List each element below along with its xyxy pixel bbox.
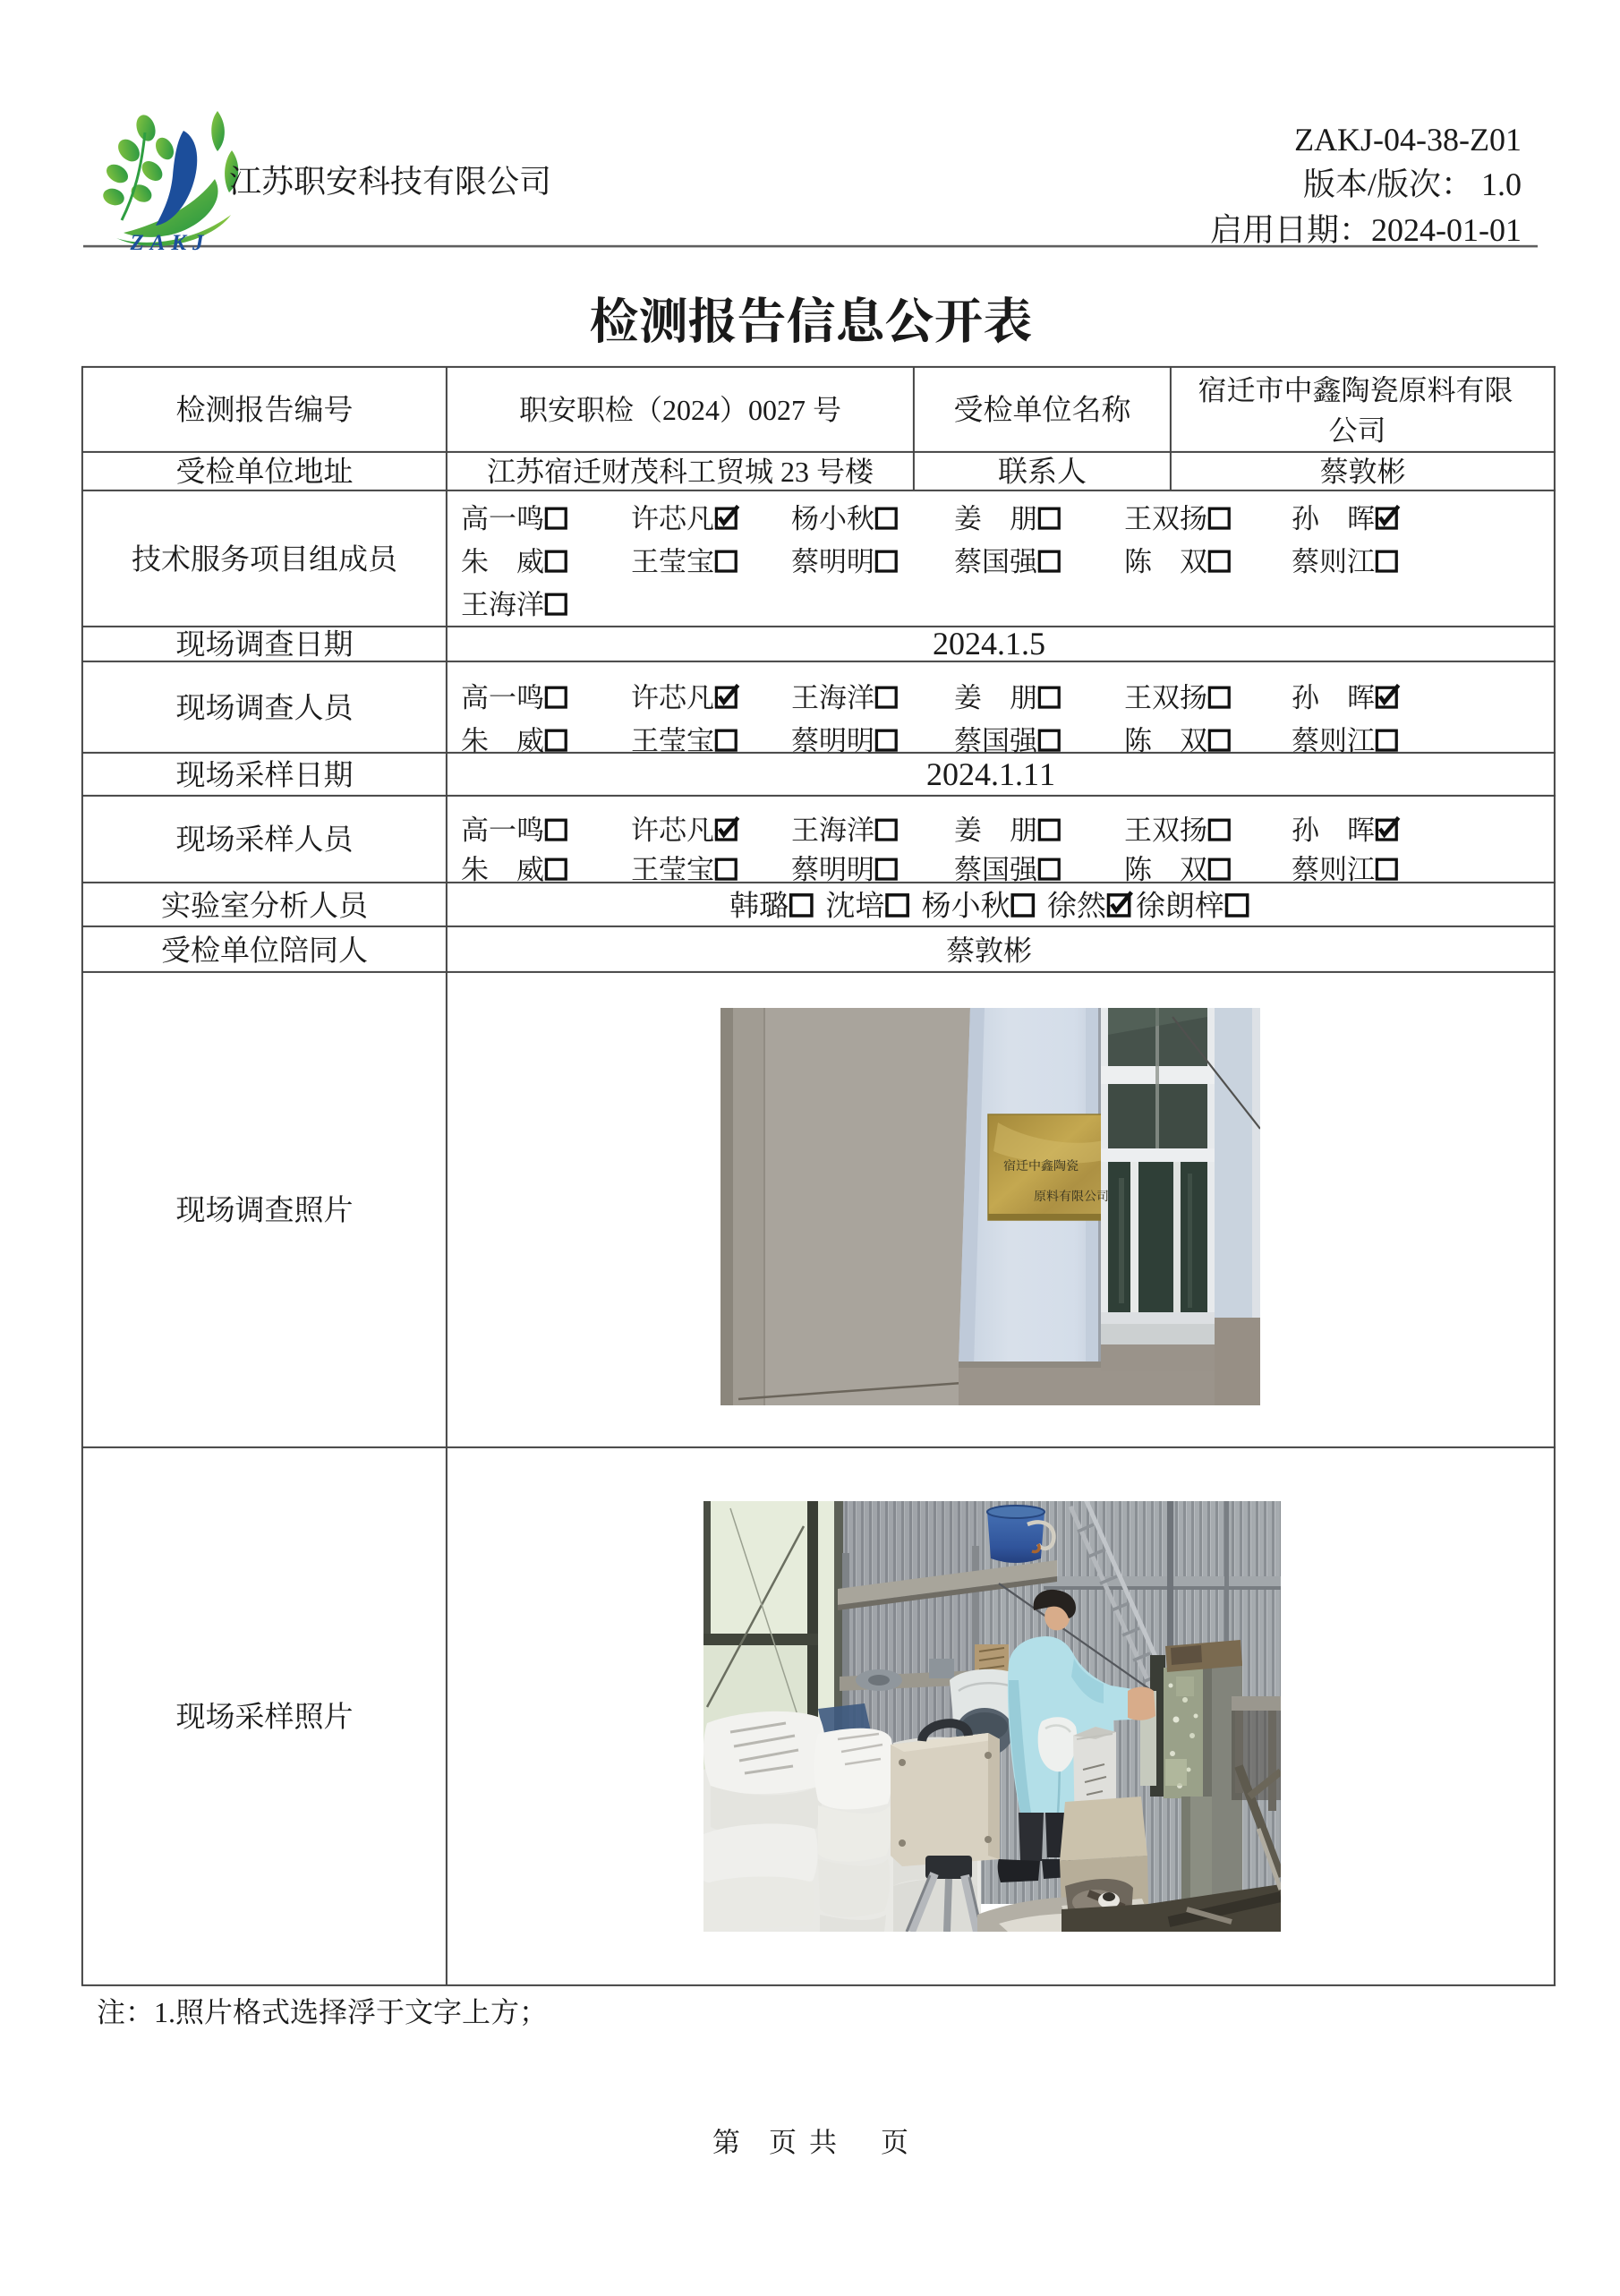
svg-text:ZAKJ: ZAKJ <box>129 231 209 255</box>
